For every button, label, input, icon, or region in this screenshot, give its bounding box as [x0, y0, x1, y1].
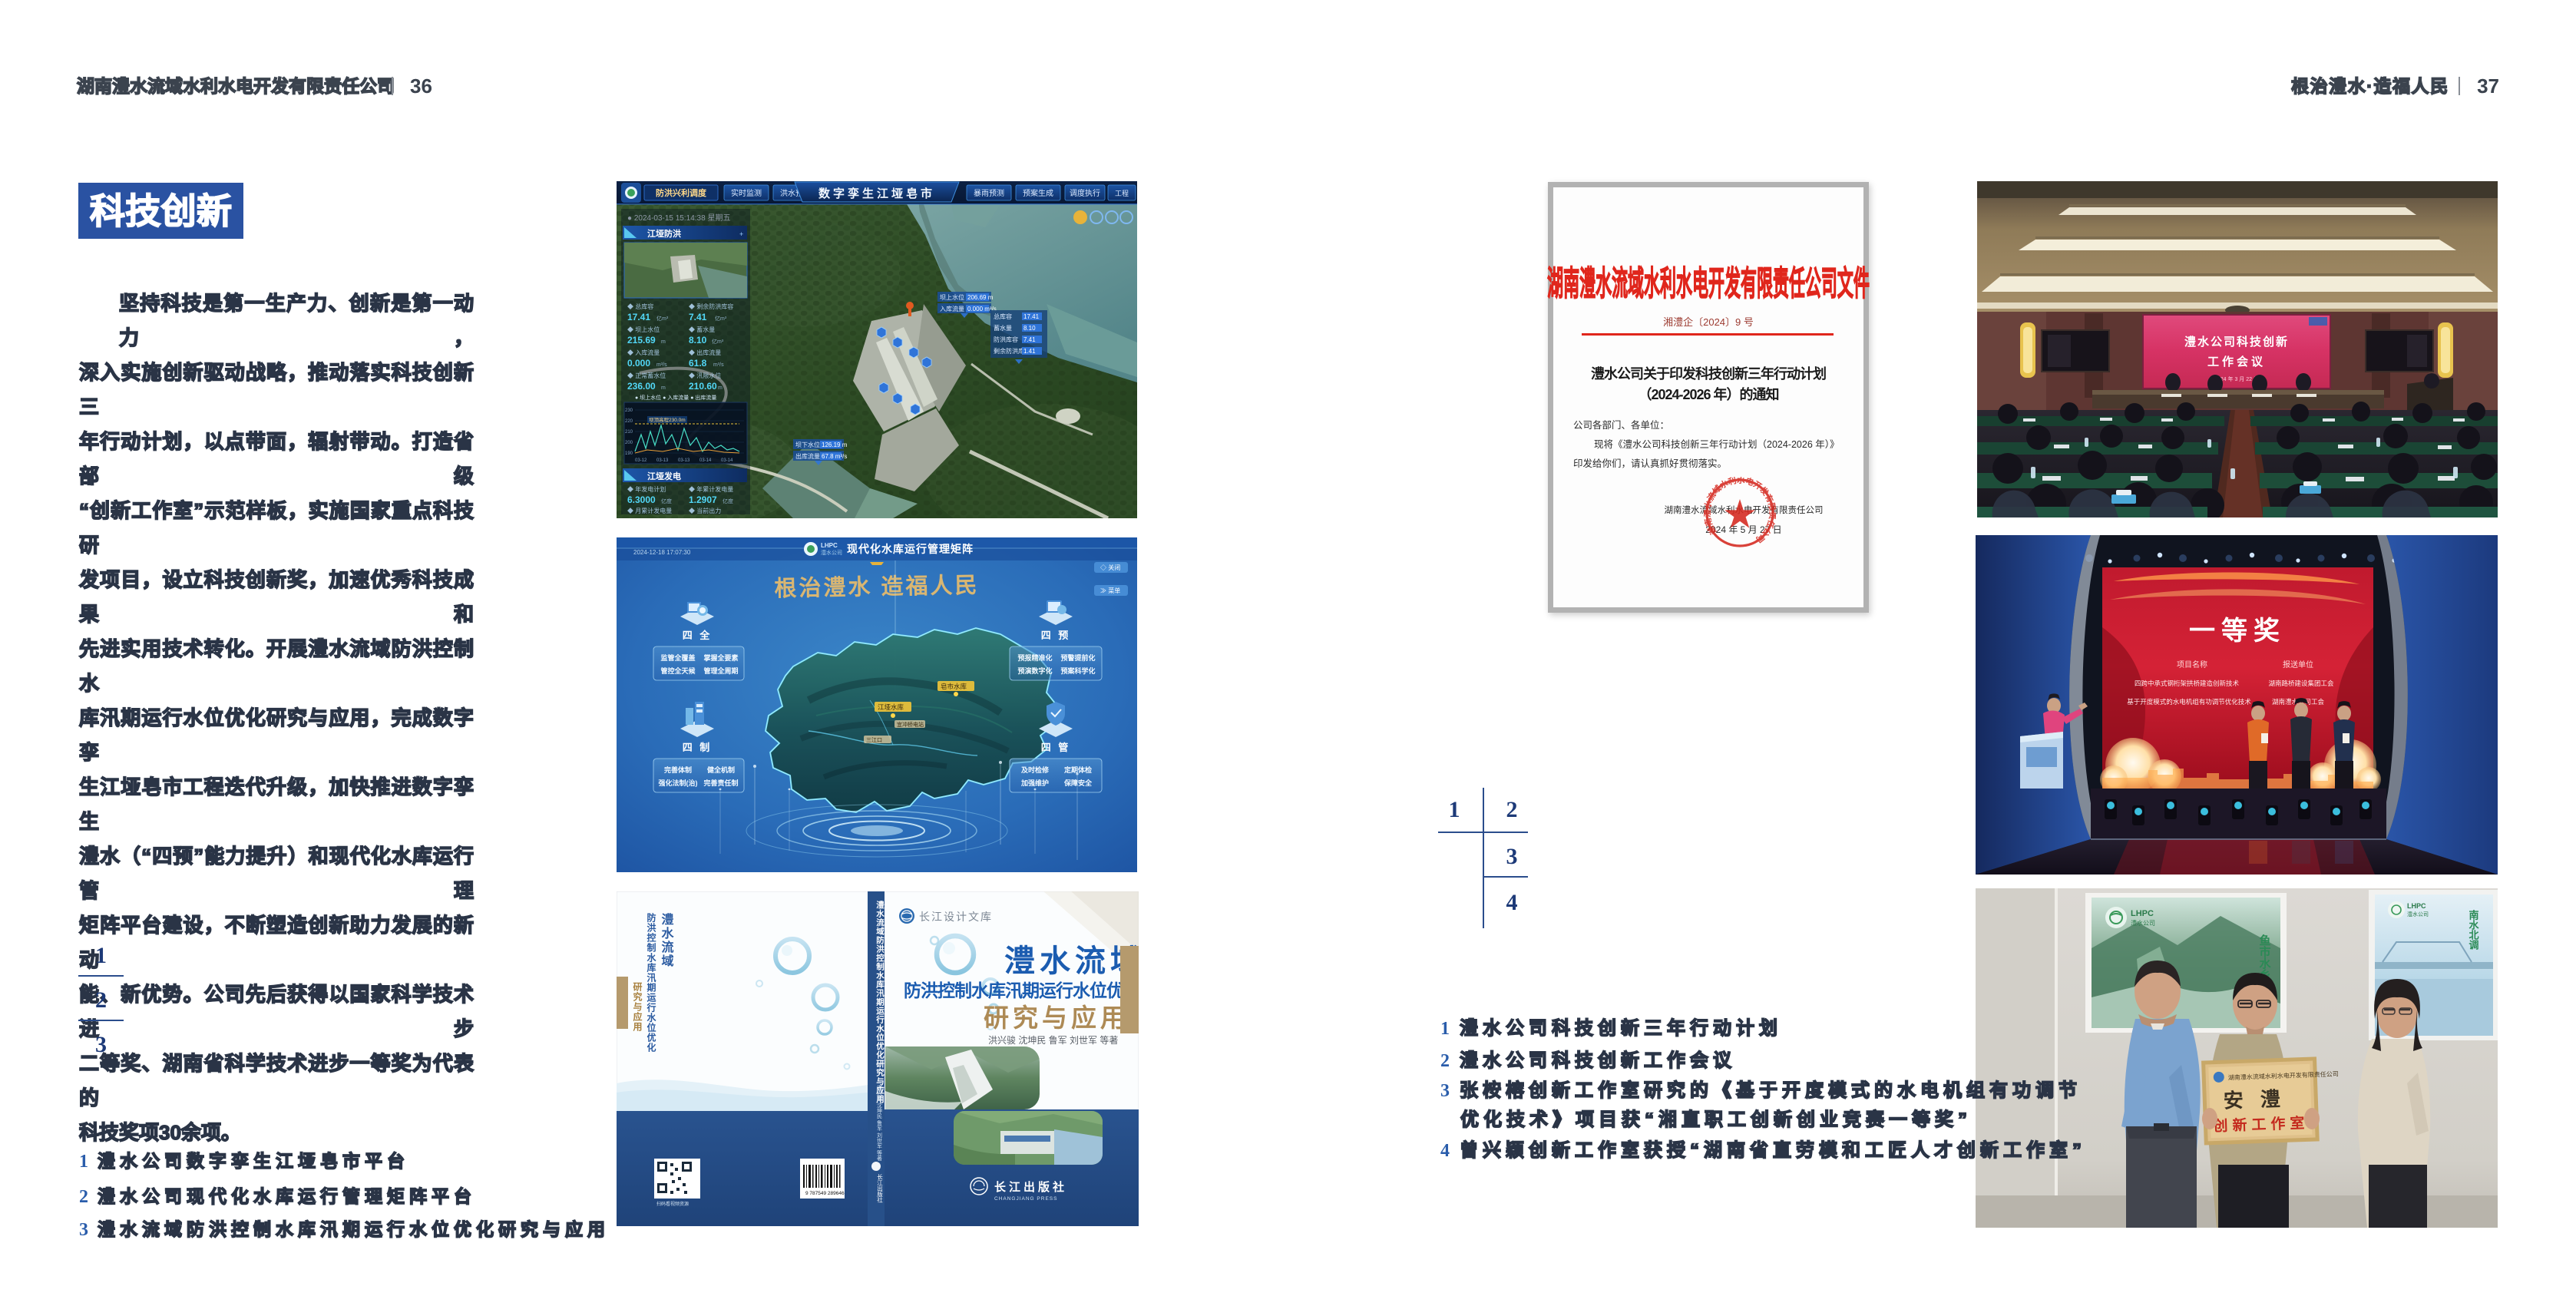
svg-text:◆ 坝上水位: ◆ 坝上水位: [627, 326, 660, 333]
svg-text:四 管: 四 管: [1041, 742, 1071, 753]
svg-text:坝下水位: 坝下水位: [795, 441, 820, 448]
svg-text:监管全覆盖: 监管全覆盖: [660, 653, 695, 662]
svg-text:03-13: 03-13: [656, 458, 669, 463]
svg-text:8.10: 8.10: [1023, 325, 1036, 332]
svg-text:≫ 菜单: ≫ 菜单: [1100, 587, 1120, 594]
svg-text:亿度: 亿度: [661, 498, 672, 504]
svg-text:17.41: 17.41: [627, 312, 650, 322]
svg-text:四 全: 四 全: [683, 630, 713, 641]
svg-text:江垭发电: 江垭发电: [647, 471, 681, 481]
svg-text:CHANGJIANG PRESS: CHANGJIANG PRESS: [994, 1196, 1057, 1202]
svg-text:三江口: 三江口: [866, 737, 882, 743]
svg-text:◆ 正常蓄水位: ◆ 正常蓄水位: [627, 372, 666, 379]
svg-text:206.69 m: 206.69 m: [967, 294, 994, 301]
svg-text:澧水公司: 澧水公司: [2131, 919, 2155, 927]
svg-text:◆ 总库容: ◆ 总库容: [627, 303, 653, 310]
svg-text:四 制: 四 制: [683, 742, 713, 753]
svg-text:◆ 入库流量: ◆ 入库流量: [627, 349, 660, 356]
svg-text:03-13: 03-13: [678, 458, 690, 463]
svg-text:LHPC: LHPC: [821, 542, 838, 549]
svg-text:澧水公司: 澧水公司: [2407, 911, 2429, 918]
svg-text:坝上水位: 坝上水位: [940, 293, 964, 301]
svg-text:澧水公司: 澧水公司: [821, 549, 842, 556]
svg-text:亿m³: 亿m³: [712, 338, 724, 345]
svg-text:8.10: 8.10: [689, 335, 707, 346]
svg-text:210.60: 210.60: [689, 381, 717, 392]
svg-text:健全机制: 健全机制: [707, 765, 735, 774]
svg-text:防洪控制水库汛期运行水位优化: 防洪控制水库汛期运行水位优化: [904, 980, 1139, 1000]
svg-text:总库容: 总库容: [994, 312, 1012, 320]
svg-text:皂市水库: 皂市水库: [941, 683, 967, 690]
svg-text:江垭水库: 江垭水库: [878, 703, 904, 711]
svg-text:预案科学化: 预案科学化: [1060, 666, 1095, 675]
svg-text:暴雨预测: 暴雨预测: [974, 188, 1004, 198]
svg-text:江垭防洪: 江垭防洪: [647, 228, 681, 239]
svg-text:洪兴骏 沈坤民 鲁军 刘世军 等著: 洪兴骏 沈坤民 鲁军 刘世军 等著: [877, 1084, 883, 1162]
svg-text:长江出版社: 长江出版社: [994, 1180, 1067, 1194]
svg-text:9 787549 289646: 9 787549 289646: [805, 1191, 845, 1196]
svg-text:LHPC: LHPC: [2407, 902, 2426, 910]
svg-text:预演数字化: 预演数字化: [1017, 666, 1052, 675]
svg-text:四 预: 四 预: [1041, 630, 1071, 641]
svg-text:220: 220: [625, 419, 633, 424]
svg-text:7.41: 7.41: [689, 312, 707, 322]
svg-text:m: m: [661, 339, 666, 345]
svg-text:1.2907: 1.2907: [689, 494, 717, 505]
svg-text:230: 230: [625, 408, 633, 413]
svg-text:亿m³: 亿m³: [656, 315, 669, 322]
svg-text:及时检修: 及时检修: [1021, 765, 1050, 774]
svg-text:210: 210: [625, 430, 633, 435]
svg-text:◆ 汛限水位: ◆ 汛限水位: [689, 372, 721, 379]
svg-text:● 坝上水位 ● 入库流量 ● 出库流量: ● 坝上水位 ● 入库流量 ● 出库流量: [635, 394, 716, 401]
svg-text:03-12: 03-12: [635, 458, 647, 463]
svg-text:工程: 工程: [1115, 190, 1129, 197]
svg-text:保障安全: 保障安全: [1063, 779, 1093, 787]
svg-text:0.000: 0.000: [627, 358, 650, 369]
svg-text:研究与应用: 研究与应用: [632, 982, 643, 1032]
svg-text:定期体检: 定期体检: [1063, 765, 1092, 774]
svg-text:◆ 年发电计划: ◆ 年发电计划: [627, 485, 666, 493]
svg-text:67.8 m³/s: 67.8 m³/s: [822, 453, 847, 460]
svg-text:完善责任制: 完善责任制: [703, 779, 738, 787]
svg-text:基于开度模式的水电机组有功调节优化技术: 基于开度模式的水电机组有功调节优化技术: [2127, 698, 2251, 706]
svg-text:预报精准化: 预报精准化: [1017, 653, 1052, 662]
svg-text:安澧: 安澧: [2223, 1086, 2297, 1112]
svg-text:防洪库容: 防洪库容: [994, 336, 1018, 343]
svg-text:掌握全要素: 掌握全要素: [703, 653, 738, 662]
svg-text:现代化水库运行管理矩阵: 现代化水库运行管理矩阵: [847, 543, 974, 555]
svg-text:洪兴骏 沈坤民 鲁军 刘世军 等著: 洪兴骏 沈坤民 鲁军 刘世军 等著: [988, 1034, 1118, 1046]
svg-text:+: +: [739, 230, 743, 238]
svg-text:17.41: 17.41: [1023, 313, 1040, 320]
svg-text:215.69: 215.69: [627, 335, 656, 346]
svg-text:澧水流域防洪控制水库汛期运行水位优化研究与应用: 澧水流域防洪控制水库汛期运行水位优化研究与应用: [875, 900, 885, 1103]
svg-text:调度执行: 调度执行: [1070, 188, 1100, 198]
svg-text:◆ 剩余防洪库容: ◆ 剩余防洪库容: [689, 303, 733, 310]
svg-text:236.00: 236.00: [627, 381, 656, 392]
svg-text:1.41: 1.41: [1023, 348, 1036, 355]
svg-text:03-14: 03-14: [721, 458, 733, 463]
svg-text:数字孪生江垭皂市: 数字孪生江垭皂市: [818, 187, 935, 200]
svg-text:防洪控制水库汛期运行水位优化: 防洪控制水库汛期运行水位优化: [646, 912, 656, 1053]
svg-text:澧水公司科技创新: 澧水公司科技创新: [2184, 335, 2289, 349]
svg-text:190: 190: [625, 451, 633, 456]
svg-text:根治澧水 造福人民: 根治澧水 造福人民: [774, 573, 980, 602]
svg-text:m³/s: m³/s: [713, 362, 724, 368]
svg-text:7.41: 7.41: [1023, 336, 1036, 343]
svg-text:126.19 m: 126.19 m: [822, 441, 848, 448]
svg-text:实时监测: 实时监测: [731, 188, 762, 198]
svg-text:宜冲桥电站: 宜冲桥电站: [897, 721, 924, 728]
svg-text:研究与应用: 研究与应用: [984, 1003, 1129, 1032]
svg-text:m³/s: m³/s: [656, 362, 667, 368]
svg-text:项目名称: 项目名称: [2177, 660, 2207, 670]
svg-text:2024-12-18 17:07:30: 2024-12-18 17:07:30: [633, 549, 691, 556]
svg-text:入库流量: 入库流量: [940, 305, 964, 312]
svg-text:管控全天候: 管控全天候: [660, 666, 696, 675]
svg-text:200: 200: [625, 441, 633, 445]
svg-text:亿m³: 亿m³: [715, 315, 727, 322]
svg-text:◇ 关闭: ◇ 关闭: [1100, 564, 1120, 571]
svg-text:南水北调: 南水北调: [2468, 909, 2479, 951]
svg-text:◆ 当前出力: ◆ 当前出力: [689, 507, 721, 514]
svg-text:出库流量: 出库流量: [795, 452, 820, 460]
svg-text:澧水流域: 澧水流域: [660, 912, 674, 968]
svg-text:扫码看视频资源: 扫码看视频资源: [656, 1201, 689, 1207]
svg-text:6.3000: 6.3000: [627, 494, 656, 505]
svg-text:强化法制(治): 强化法制(治): [659, 779, 698, 787]
svg-text:◆ 月累计发电量: ◆ 月累计发电量: [627, 507, 672, 514]
svg-text:预警提前化: 预警提前化: [1060, 653, 1095, 662]
svg-text:m: m: [661, 385, 666, 391]
svg-text:61.8: 61.8: [689, 358, 707, 369]
svg-text:一等奖: 一等奖: [2189, 617, 2286, 646]
svg-text:坝顶高程230.0m: 坝顶高程230.0m: [649, 416, 686, 423]
svg-text:防洪兴利调度: 防洪兴利调度: [656, 187, 707, 198]
svg-text:加强维护: 加强维护: [1020, 779, 1049, 787]
svg-text:亿度: 亿度: [723, 498, 733, 504]
svg-text:湖南路桥建设集团工会: 湖南路桥建设集团工会: [2268, 679, 2334, 687]
svg-text:◆ 出库流量: ◆ 出库流量: [689, 349, 721, 356]
svg-text:LHPC: LHPC: [2131, 909, 2154, 918]
svg-text:预案生成: 预案生成: [1023, 188, 1053, 198]
svg-text:03-14: 03-14: [699, 458, 712, 463]
svg-text:蓄水量: 蓄水量: [994, 324, 1012, 332]
svg-text:四跨中承式钢桁架拱桥建造创新技术: 四跨中承式钢桁架拱桥建造创新技术: [2135, 679, 2240, 687]
svg-text:管理全周期: 管理全周期: [703, 666, 738, 675]
svg-text:◆ 年累计发电量: ◆ 年累计发电量: [689, 485, 733, 493]
svg-text:报送单位: 报送单位: [2283, 660, 2313, 670]
svg-text:长江出版社: 长江出版社: [876, 1173, 883, 1204]
svg-text:工作会议: 工作会议: [2207, 355, 2266, 369]
svg-text:完善体制: 完善体制: [664, 765, 692, 774]
svg-text:m: m: [718, 385, 723, 391]
svg-text:长江设计文库: 长江设计文库: [919, 911, 993, 923]
svg-text:◆ 蓄水量: ◆ 蓄水量: [689, 326, 715, 333]
svg-text:澧水流域: 澧水流域: [1004, 944, 1139, 978]
